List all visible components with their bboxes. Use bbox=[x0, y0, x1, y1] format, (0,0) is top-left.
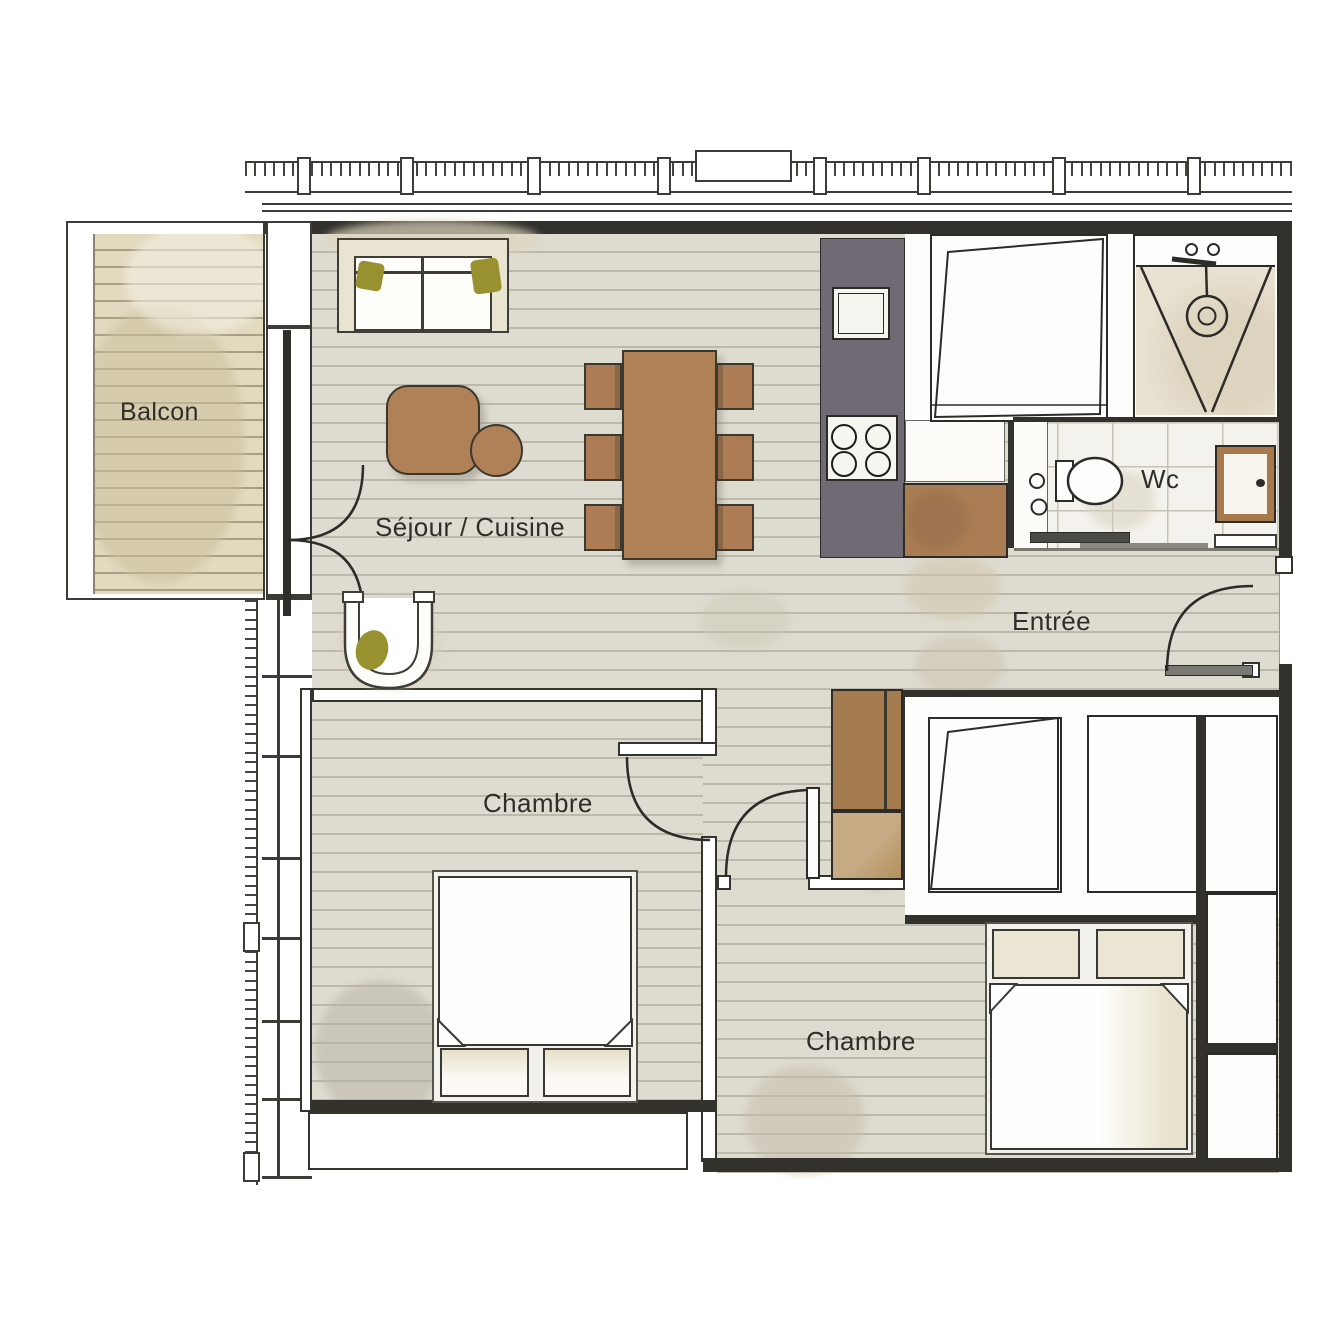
balcony-label: Balcon bbox=[120, 398, 199, 427]
cabinet-handle bbox=[1256, 479, 1265, 487]
wc-label: Wc bbox=[1141, 464, 1179, 495]
shower-tray bbox=[1136, 265, 1275, 415]
bed2-pillow bbox=[1096, 929, 1185, 979]
wall-segment bbox=[1214, 534, 1277, 548]
dining-table bbox=[622, 350, 717, 560]
watercolor-stain bbox=[93, 304, 245, 584]
entry-label: Entrée bbox=[1012, 606, 1091, 637]
wall-bedrooms-divider bbox=[701, 836, 717, 1162]
side-closet bbox=[1206, 893, 1278, 1045]
kitchen-sink-basin bbox=[838, 293, 884, 334]
dining-chair bbox=[716, 434, 754, 481]
entry-door-opening bbox=[1279, 574, 1292, 664]
olive-cushion bbox=[355, 260, 385, 292]
watercolor-stain bbox=[915, 635, 1005, 695]
bedroom2-south-wall bbox=[703, 1158, 1292, 1172]
side-closet-divider bbox=[1206, 1043, 1278, 1053]
watercolor-stain bbox=[338, 595, 443, 690]
closet-b bbox=[1087, 715, 1278, 893]
entry-closet bbox=[930, 234, 1108, 422]
bedroom1-west-wall bbox=[300, 688, 312, 1112]
kitchen-niche bbox=[905, 420, 1005, 482]
coffee-table bbox=[386, 385, 480, 475]
east-wall bbox=[1279, 221, 1292, 1172]
railing-post bbox=[1052, 157, 1066, 195]
entry-door-leaf bbox=[1165, 665, 1253, 676]
wall-living-bedroom1 bbox=[312, 688, 717, 702]
bed1-pillow bbox=[543, 1048, 631, 1097]
planter-box bbox=[695, 150, 792, 182]
dining-chair bbox=[716, 363, 754, 410]
railing-left bbox=[245, 600, 258, 1185]
worktop bbox=[903, 483, 1008, 558]
french-door-glazing bbox=[283, 330, 291, 616]
wall-entry-south bbox=[905, 690, 1292, 697]
burner bbox=[831, 424, 857, 450]
bedroom2-right-wall bbox=[1196, 717, 1206, 1163]
wardrobe-tall bbox=[831, 689, 903, 811]
window-frame-line bbox=[277, 600, 280, 1178]
window-mullion bbox=[262, 1176, 312, 1179]
dining-chair bbox=[716, 504, 754, 551]
burner bbox=[831, 451, 857, 477]
terrace-edge-line bbox=[262, 203, 1292, 212]
door-hinge-block bbox=[1275, 556, 1293, 574]
washbasin-cabinet bbox=[1217, 447, 1274, 521]
window-mullion bbox=[262, 675, 312, 678]
railing-post bbox=[243, 1152, 260, 1182]
bedroom1-label: Chambre bbox=[483, 788, 593, 819]
watercolor-stain bbox=[315, 980, 445, 1120]
olive-cushion bbox=[470, 257, 502, 295]
bed2-pillow bbox=[992, 929, 1080, 979]
living-kitchen-label: Séjour / Cuisine bbox=[375, 512, 565, 543]
bedroom2-label: Chambre bbox=[806, 1026, 916, 1057]
sliding-door-panel bbox=[1030, 532, 1130, 543]
side-closet bbox=[1206, 1053, 1278, 1160]
burner bbox=[865, 424, 891, 450]
watercolor-stain bbox=[907, 490, 967, 550]
wardrobe-low bbox=[831, 811, 903, 880]
wall-bedroom1-nook bbox=[618, 742, 717, 756]
railing-post bbox=[297, 157, 311, 195]
railing-post bbox=[1187, 157, 1201, 195]
shower-knob bbox=[1185, 243, 1198, 256]
bed1-pillow bbox=[440, 1048, 529, 1097]
door-jamb bbox=[717, 875, 731, 890]
wc-south-line bbox=[1014, 548, 1279, 551]
dining-chair bbox=[584, 434, 622, 481]
burner bbox=[865, 451, 891, 477]
watercolor-stain bbox=[700, 590, 790, 650]
railing-post bbox=[243, 922, 260, 952]
watercolor-stain bbox=[905, 555, 1000, 620]
railing-post bbox=[400, 157, 414, 195]
railing-post bbox=[813, 157, 827, 195]
bed1-duvet bbox=[438, 876, 632, 1046]
railing-post bbox=[527, 157, 541, 195]
dining-chair bbox=[584, 504, 622, 551]
floor-plan: Balcon bbox=[0, 0, 1333, 1333]
kitchen-counter bbox=[820, 238, 905, 558]
shower-knob bbox=[1207, 243, 1220, 256]
sofa-seat-divider bbox=[421, 256, 424, 331]
railing-post bbox=[917, 157, 931, 195]
window-mullion bbox=[266, 325, 312, 329]
closet-a bbox=[928, 717, 1062, 893]
shower bbox=[1133, 234, 1279, 420]
wardrobe-seam bbox=[884, 691, 887, 809]
dining-chair bbox=[584, 363, 622, 410]
side-table bbox=[470, 424, 523, 477]
railing-post bbox=[657, 157, 671, 195]
south-ledge bbox=[308, 1112, 688, 1170]
bed2-duvet bbox=[990, 984, 1188, 1150]
duct bbox=[1014, 422, 1048, 548]
